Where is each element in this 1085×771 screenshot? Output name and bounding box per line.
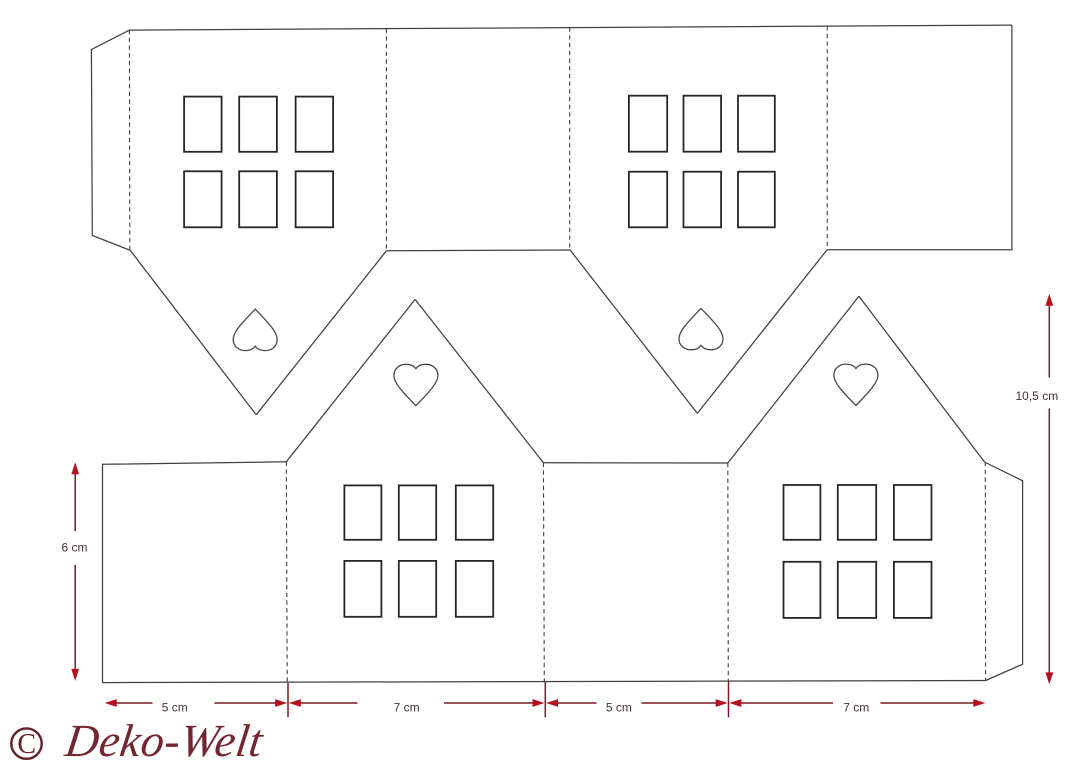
- svg-text:C: C: [17, 729, 36, 760]
- svg-text:5 cm: 5 cm: [162, 700, 188, 714]
- svg-text:7 cm: 7 cm: [843, 700, 869, 714]
- svg-text:6 cm: 6 cm: [62, 540, 88, 554]
- svg-text:Deko-Welt: Deko-Welt: [61, 715, 267, 766]
- svg-text:10,5 cm: 10,5 cm: [1016, 389, 1059, 403]
- svg-text:7 cm: 7 cm: [394, 700, 420, 714]
- svg-text:5 cm: 5 cm: [606, 700, 632, 714]
